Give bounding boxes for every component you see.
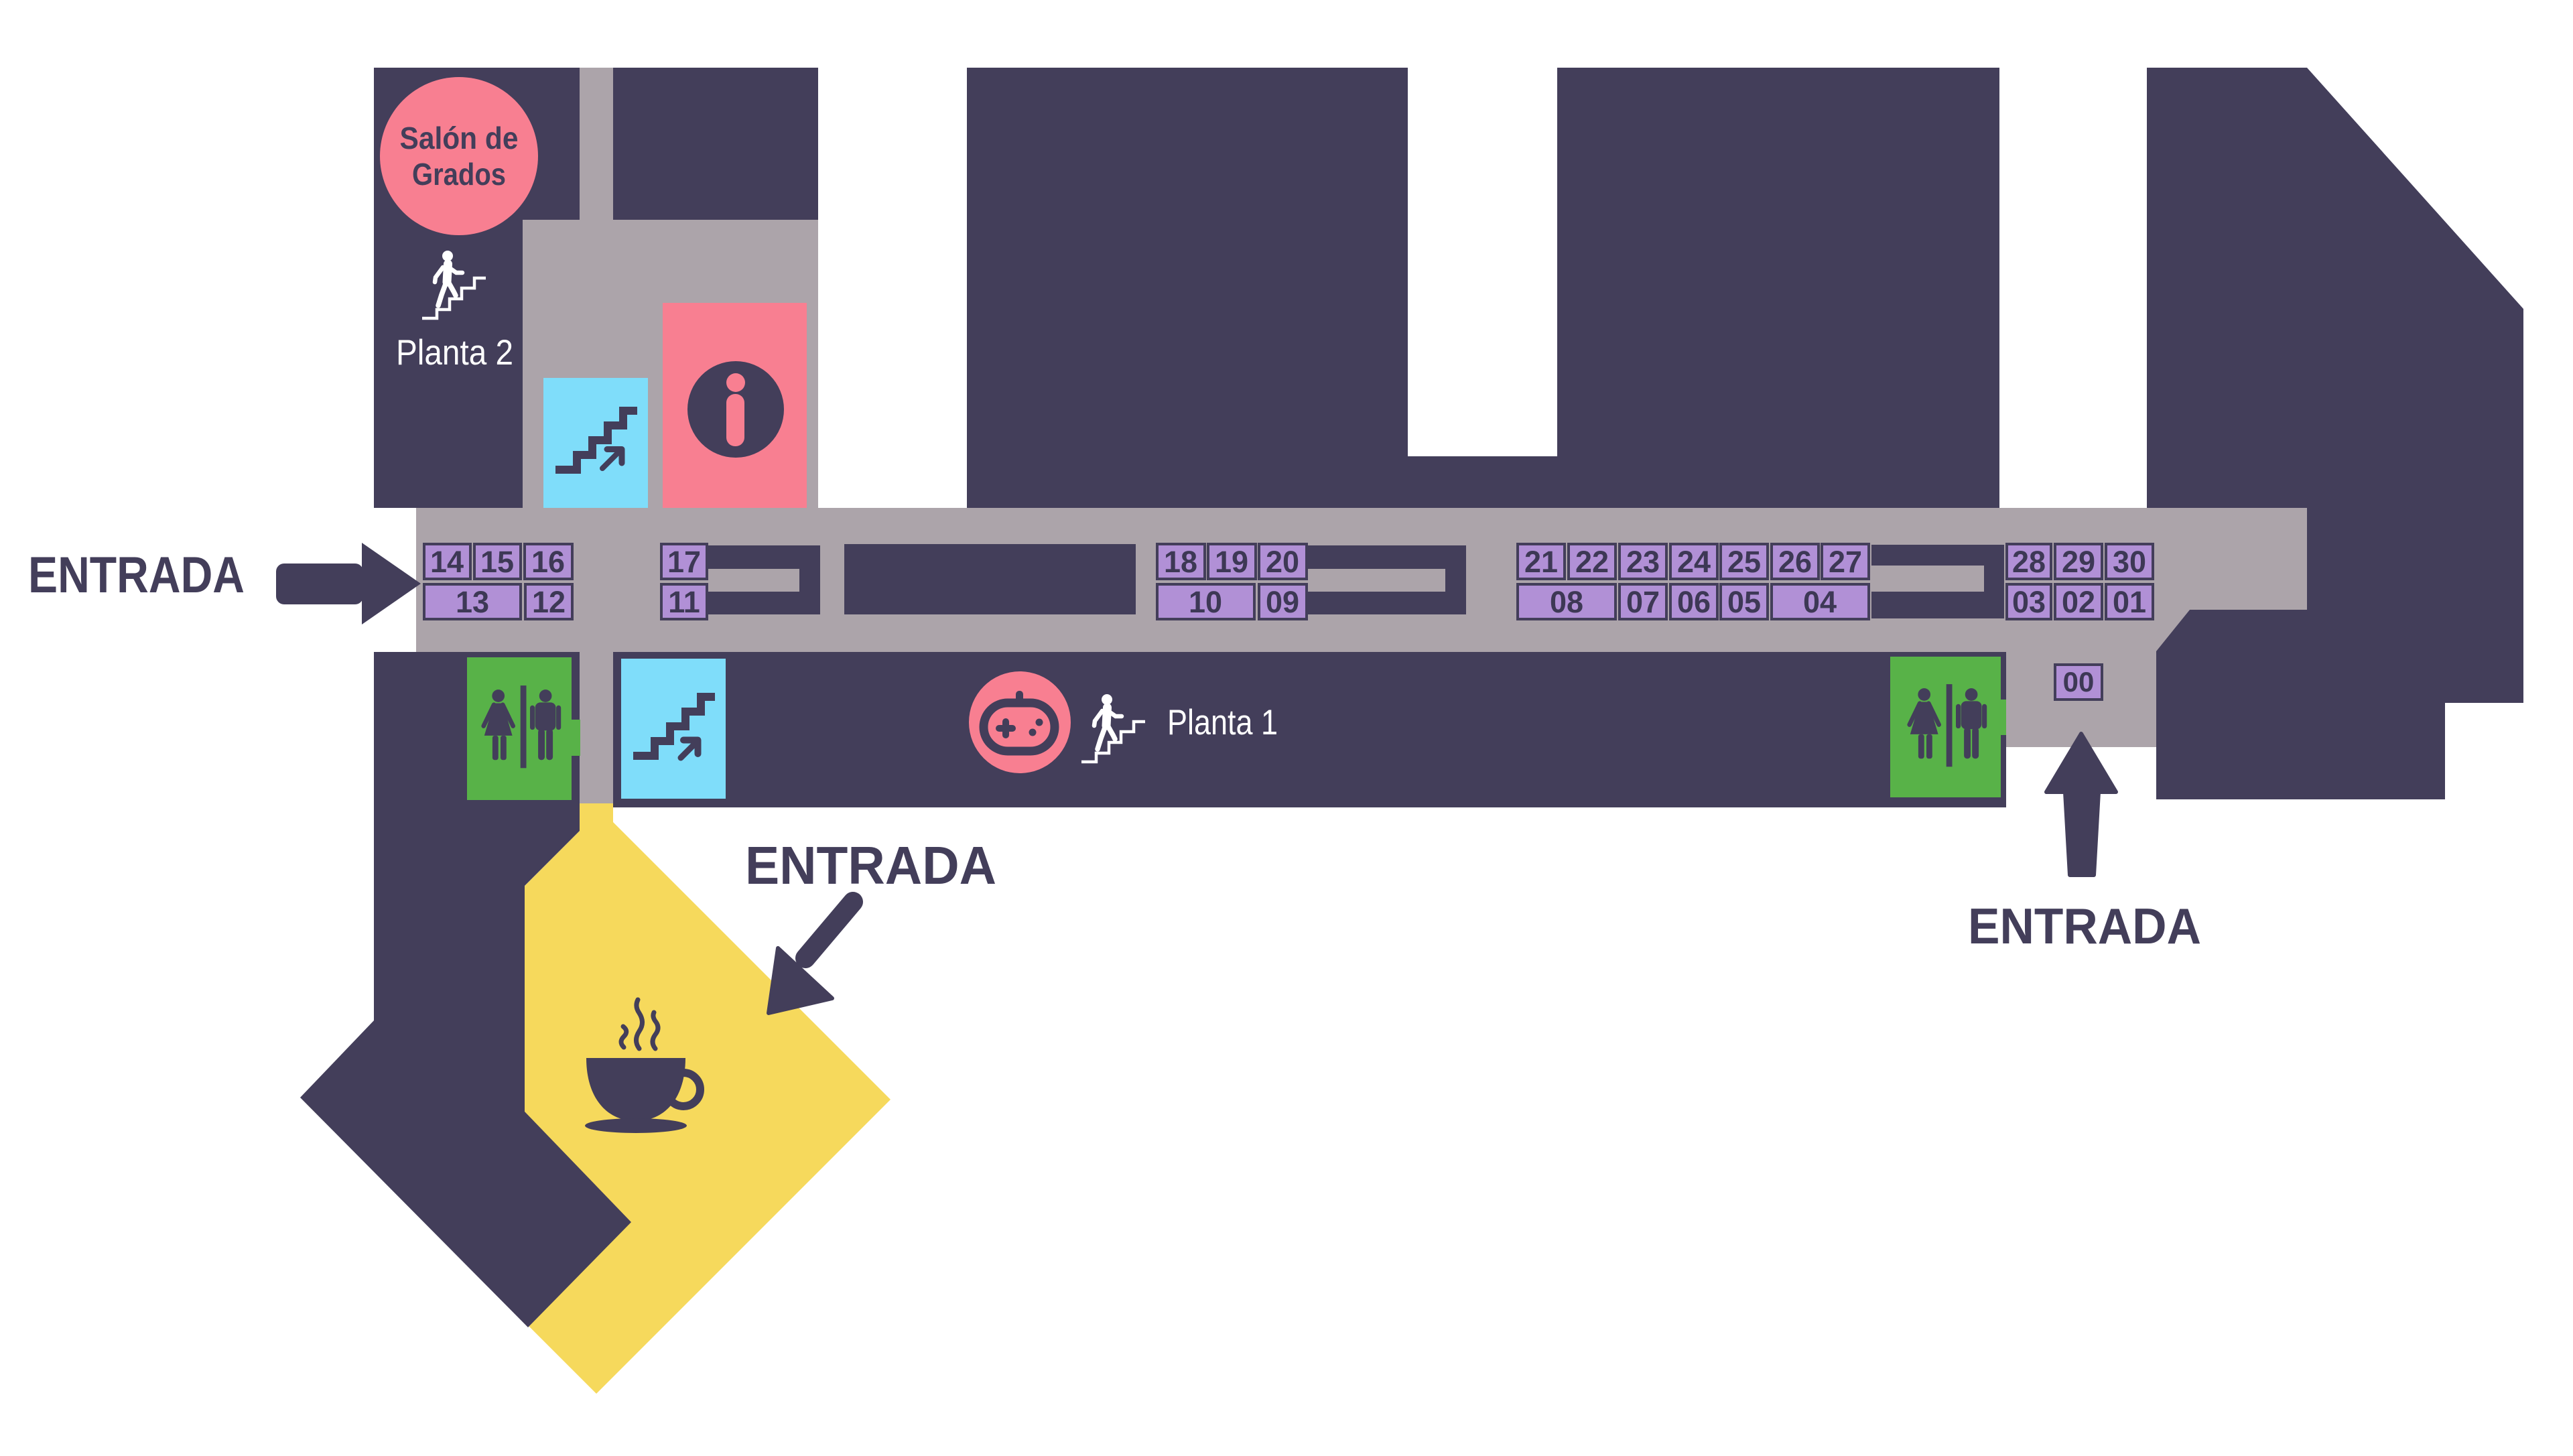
svg-text:22: 22 (1575, 545, 1609, 579)
svg-text:26: 26 (1778, 545, 1812, 579)
svg-text:08: 08 (1550, 585, 1583, 619)
svg-text:23: 23 (1626, 545, 1660, 579)
svg-text:11: 11 (668, 585, 700, 619)
svg-text:24: 24 (1677, 545, 1711, 579)
svg-text:18: 18 (1164, 545, 1197, 579)
svg-text:07: 07 (1626, 585, 1660, 619)
svg-text:16: 16 (531, 545, 565, 579)
svg-text:12: 12 (532, 585, 566, 619)
svg-text:03: 03 (2012, 585, 2046, 619)
svg-text:ENTRADA: ENTRADA (28, 547, 245, 604)
svg-text:28: 28 (2012, 545, 2046, 579)
svg-text:13: 13 (456, 585, 489, 619)
svg-text:00: 00 (2063, 666, 2095, 698)
svg-text:09: 09 (1266, 585, 1299, 619)
svg-text:25: 25 (1727, 545, 1761, 579)
svg-text:29: 29 (2062, 545, 2095, 579)
svg-text:27: 27 (1829, 545, 1862, 579)
svg-text:21: 21 (1524, 545, 1558, 579)
svg-text:ENTRADA: ENTRADA (745, 836, 996, 895)
svg-text:Salón de: Salón de (400, 121, 519, 155)
svg-text:19: 19 (1215, 545, 1248, 579)
svg-text:01: 01 (2113, 585, 2146, 619)
svg-text:02: 02 (2062, 585, 2095, 619)
svg-text:Grados: Grados (412, 157, 506, 192)
svg-text:15: 15 (480, 545, 514, 579)
svg-text:ENTRADA: ENTRADA (1968, 898, 2201, 954)
svg-text:Planta 1: Planta 1 (1167, 703, 1278, 742)
svg-text:30: 30 (2113, 545, 2146, 579)
svg-text:14: 14 (430, 545, 464, 579)
svg-text:Planta 2: Planta 2 (396, 333, 513, 373)
svg-text:10: 10 (1189, 585, 1222, 619)
svg-text:17: 17 (667, 545, 701, 579)
svg-text:05: 05 (1727, 585, 1761, 619)
svg-text:06: 06 (1677, 585, 1711, 619)
svg-text:04: 04 (1803, 585, 1837, 619)
svg-text:20: 20 (1266, 545, 1299, 579)
